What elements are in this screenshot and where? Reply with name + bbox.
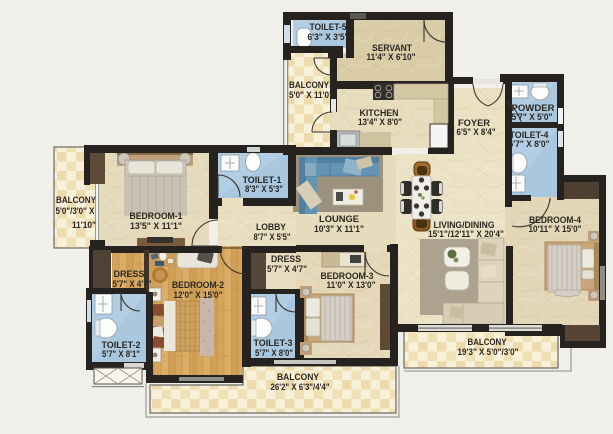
svg-text:19'3" X 5'0"/3'0": 19'3" X 5'0"/3'0"	[458, 347, 519, 357]
svg-text:8'7" X 5'5": 8'7" X 5'5"	[254, 232, 291, 242]
svg-text:8'3" X 5'3": 8'3" X 5'3"	[245, 184, 283, 194]
svg-text:5'7" X 8'1": 5'7" X 8'1"	[102, 349, 140, 359]
svg-text:15'1"/12'11" X 20'4": 15'1"/12'11" X 20'4"	[428, 229, 504, 239]
svg-text:5'7" X 8'0": 5'7" X 8'0"	[509, 139, 550, 149]
svg-text:11'0" X 13'0": 11'0" X 13'0"	[327, 280, 376, 290]
svg-text:10'11" X 15'0": 10'11" X 15'0"	[529, 224, 582, 234]
svg-text:11'10": 11'10"	[72, 220, 96, 230]
svg-text:6'5" X 8'4": 6'5" X 8'4"	[457, 127, 496, 137]
svg-text:11'4" X 6'10": 11'4" X 6'10"	[367, 52, 416, 62]
svg-text:12'0" X 15'0": 12'0" X 15'0"	[174, 290, 223, 300]
svg-text:6'3" X 3'5": 6'3" X 3'5"	[308, 32, 349, 42]
svg-text:5'7" X 4'7": 5'7" X 4'7"	[113, 279, 152, 289]
svg-text:BALCONY: BALCONY	[56, 195, 97, 206]
svg-text:5'7" X 5'0": 5'7" X 5'0"	[512, 112, 553, 122]
svg-text:10'3" X 11'1": 10'3" X 11'1"	[314, 224, 364, 234]
svg-text:5'0" X 11'0": 5'0" X 11'0"	[289, 90, 333, 100]
svg-text:13'4" X 8'0": 13'4" X 8'0"	[358, 117, 402, 127]
svg-text:5'7" X 8'0": 5'7" X 8'0"	[255, 348, 293, 358]
svg-text:5'0"/3'0" X: 5'0"/3'0" X	[56, 206, 95, 216]
svg-text:13'5" X 11'1": 13'5" X 11'1"	[130, 221, 182, 231]
svg-text:26'2" X 6'3"/4'4": 26'2" X 6'3"/4'4"	[271, 382, 330, 392]
svg-text:5'7" X 4'7": 5'7" X 4'7"	[267, 264, 307, 274]
